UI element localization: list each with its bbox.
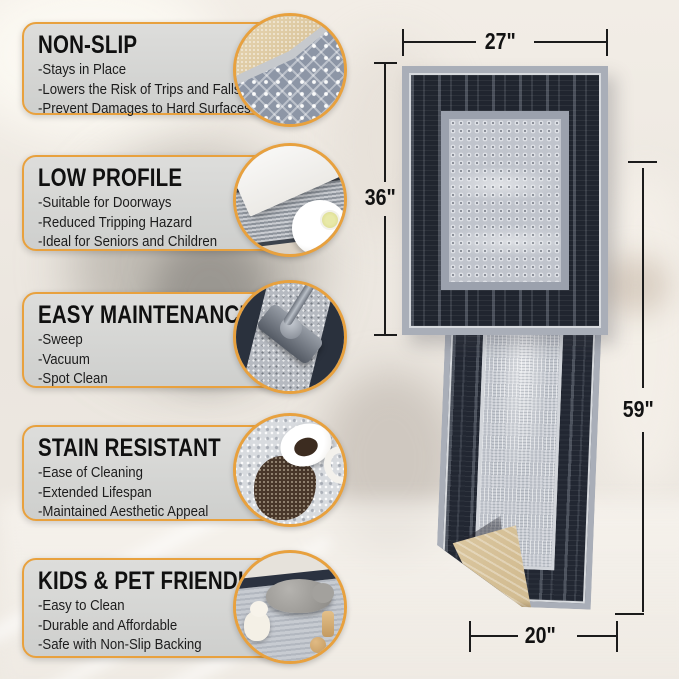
low-profile-photo [233, 143, 347, 257]
dim-label-36: 36" [365, 184, 396, 211]
feature-title: EASY MAINTENANCE [38, 302, 259, 328]
kids-pet-friendly-photo [233, 550, 347, 664]
decor-blur [600, 255, 670, 315]
dim-label-59: 59" [623, 396, 654, 423]
dim-tick [628, 161, 657, 163]
wooden-toy-disc [310, 637, 326, 653]
feature-title: STAIN RESISTANT [38, 435, 259, 461]
mat-border-band [409, 73, 601, 328]
easy-maintenance-photo [233, 280, 347, 394]
mat-rug [402, 66, 608, 335]
dim-line [384, 63, 386, 182]
stain-resistant-photo [233, 413, 347, 527]
mat-inner-band [441, 111, 569, 290]
wooden-toy-stack [322, 611, 334, 637]
dim-line [470, 635, 518, 637]
dim-label-20: 20" [525, 622, 556, 649]
dim-tick [615, 613, 644, 615]
feature-title: NON-SLIP [38, 32, 259, 58]
wooden-toy-disc [328, 643, 341, 656]
dim-tick [374, 334, 397, 336]
dim-line [403, 41, 476, 43]
robot-vacuum-shape [292, 200, 347, 256]
dim-line [642, 432, 644, 612]
feature-title: LOW PROFILE [38, 165, 259, 191]
rug-infographic: NON-SLIP -Stays in Place -Lowers the Ris… [0, 0, 679, 679]
mat-center-field [449, 119, 561, 282]
dim-line [577, 635, 617, 637]
dim-line [642, 168, 644, 388]
dim-label-27: 27" [485, 28, 516, 55]
non-slip-backing-photo [233, 13, 347, 127]
dim-line [534, 41, 607, 43]
teddy-bear-head-shape [250, 601, 268, 617]
cat-head-shape [312, 583, 334, 603]
robot-vacuum-button [320, 210, 340, 230]
dim-line [384, 216, 386, 334]
feature-title: KIDS & PET FRIENDLY [38, 568, 259, 594]
